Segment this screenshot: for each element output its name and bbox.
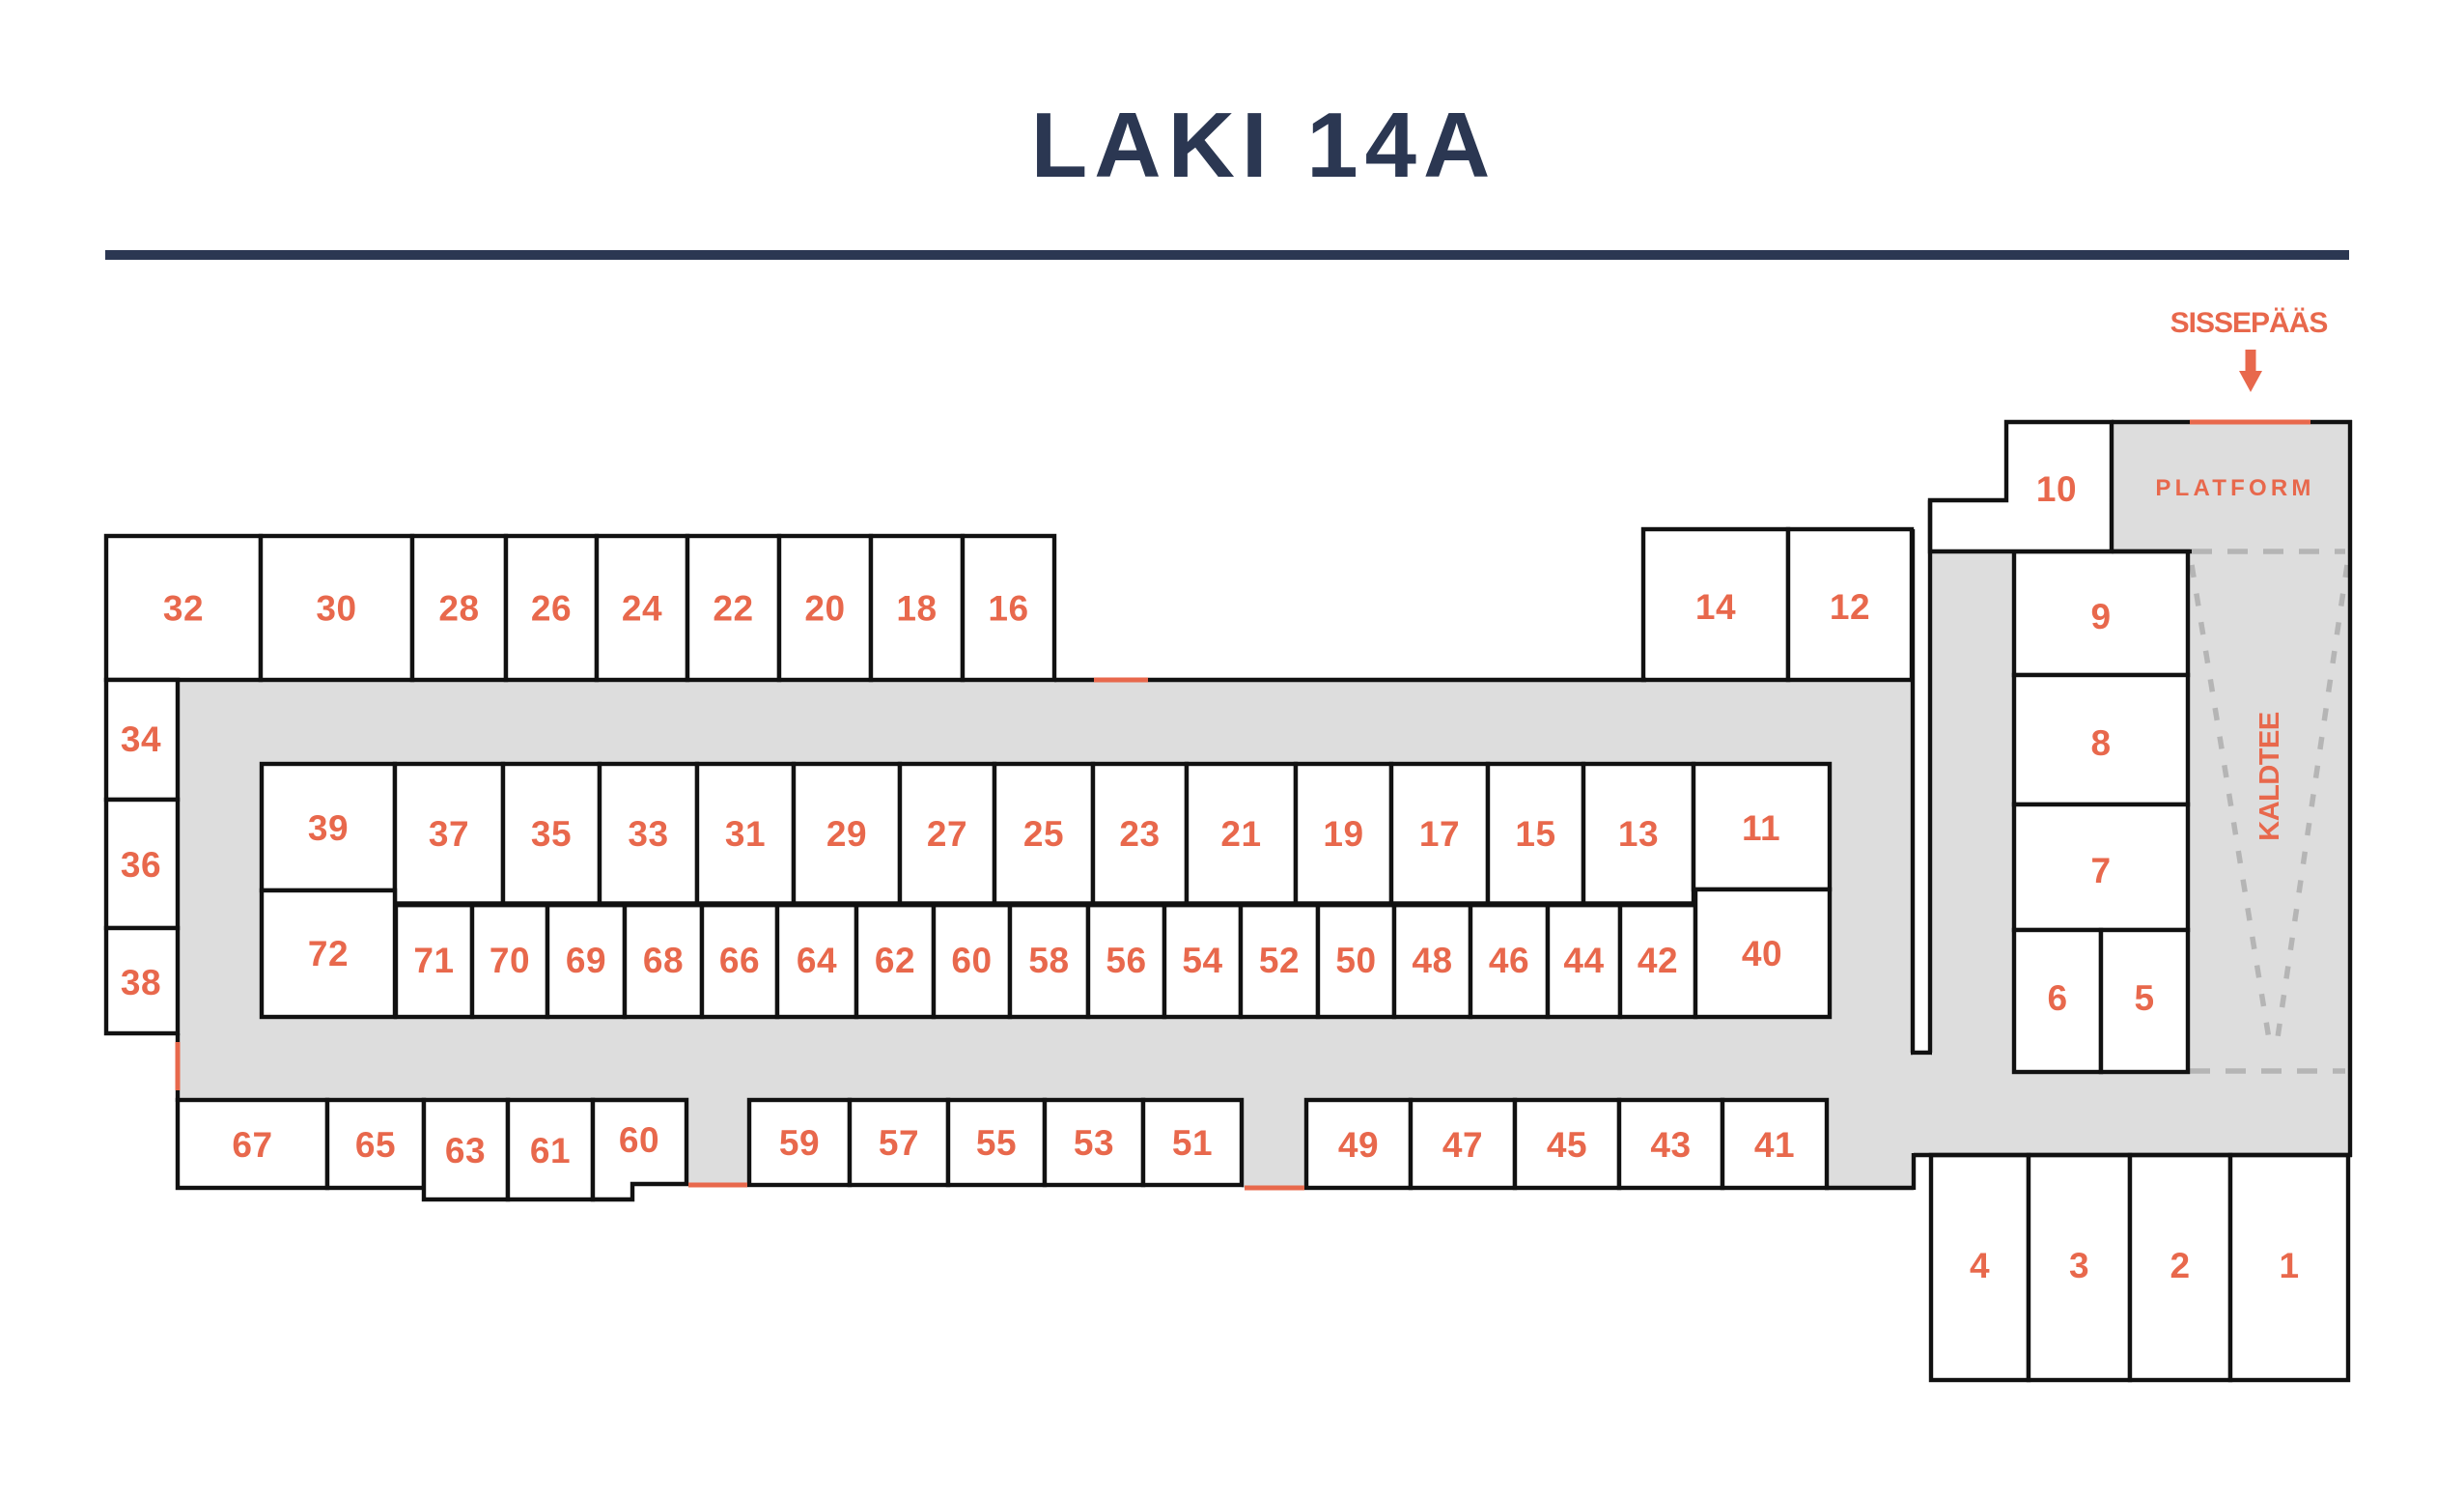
svg-text:44: 44 — [1563, 941, 1604, 980]
svg-text:30: 30 — [316, 589, 356, 629]
svg-text:SISSEPÄÄS: SISSEPÄÄS — [2170, 307, 2328, 339]
svg-text:72: 72 — [308, 934, 349, 973]
svg-text:2: 2 — [2170, 1246, 2190, 1285]
svg-text:35: 35 — [531, 814, 572, 854]
svg-text:37: 37 — [429, 814, 469, 854]
svg-text:60: 60 — [951, 941, 992, 980]
svg-text:16: 16 — [988, 589, 1028, 629]
svg-text:24: 24 — [622, 589, 662, 629]
svg-text:17: 17 — [1419, 814, 1460, 854]
svg-text:57: 57 — [879, 1123, 919, 1163]
svg-text:32: 32 — [163, 589, 204, 629]
svg-text:33: 33 — [628, 814, 668, 854]
svg-text:42: 42 — [1638, 941, 1678, 980]
svg-text:53: 53 — [1074, 1123, 1114, 1163]
svg-text:67: 67 — [232, 1125, 272, 1165]
svg-text:22: 22 — [713, 589, 753, 629]
svg-text:70: 70 — [490, 941, 530, 980]
svg-text:14: 14 — [1695, 587, 1736, 627]
svg-text:41: 41 — [1754, 1125, 1795, 1165]
svg-text:61: 61 — [530, 1131, 571, 1170]
svg-text:19: 19 — [1323, 814, 1363, 854]
svg-text:28: 28 — [438, 589, 479, 629]
svg-text:49: 49 — [1338, 1125, 1379, 1165]
svg-text:36: 36 — [121, 845, 161, 885]
svg-text:64: 64 — [797, 941, 837, 980]
svg-text:4: 4 — [1970, 1246, 1990, 1285]
svg-text:LAKI 14A: LAKI 14A — [1031, 94, 1498, 197]
svg-text:27: 27 — [927, 814, 967, 854]
svg-text:38: 38 — [121, 963, 161, 1002]
svg-text:26: 26 — [531, 589, 572, 629]
svg-text:5: 5 — [2134, 978, 2154, 1018]
svg-text:54: 54 — [1182, 941, 1222, 980]
svg-text:29: 29 — [826, 814, 867, 854]
svg-text:55: 55 — [976, 1123, 1017, 1163]
svg-text:40: 40 — [1742, 934, 1782, 973]
svg-text:46: 46 — [1489, 941, 1529, 980]
svg-text:71: 71 — [413, 941, 454, 980]
svg-text:43: 43 — [1650, 1125, 1691, 1165]
svg-text:34: 34 — [121, 719, 161, 759]
svg-text:6: 6 — [2047, 978, 2067, 1018]
svg-text:45: 45 — [1547, 1125, 1587, 1165]
svg-text:13: 13 — [1618, 814, 1659, 854]
svg-text:21: 21 — [1220, 814, 1261, 854]
svg-text:7: 7 — [2090, 851, 2111, 890]
svg-text:KALDTEE: KALDTEE — [2254, 712, 2285, 841]
svg-text:68: 68 — [643, 941, 684, 980]
svg-text:12: 12 — [1830, 587, 1870, 627]
svg-text:31: 31 — [725, 814, 766, 854]
svg-text:PLATFORM: PLATFORM — [2155, 475, 2314, 501]
svg-text:11: 11 — [1742, 808, 1780, 848]
svg-text:51: 51 — [1172, 1123, 1213, 1163]
svg-text:9: 9 — [2090, 597, 2111, 636]
svg-text:48: 48 — [1412, 941, 1452, 980]
svg-text:58: 58 — [1028, 941, 1069, 980]
svg-text:59: 59 — [779, 1123, 820, 1163]
svg-text:66: 66 — [719, 941, 760, 980]
svg-text:15: 15 — [1515, 814, 1555, 854]
svg-text:50: 50 — [1335, 941, 1376, 980]
svg-text:60: 60 — [619, 1120, 659, 1160]
svg-text:65: 65 — [355, 1125, 396, 1165]
svg-text:62: 62 — [875, 941, 915, 980]
svg-text:52: 52 — [1259, 941, 1300, 980]
svg-text:63: 63 — [445, 1131, 486, 1170]
svg-text:18: 18 — [896, 589, 937, 629]
svg-text:39: 39 — [308, 808, 349, 848]
svg-text:25: 25 — [1023, 814, 1064, 854]
svg-text:20: 20 — [804, 589, 845, 629]
svg-text:1: 1 — [2279, 1246, 2299, 1285]
svg-text:23: 23 — [1119, 814, 1160, 854]
svg-text:47: 47 — [1442, 1125, 1483, 1165]
svg-text:56: 56 — [1106, 941, 1146, 980]
svg-text:8: 8 — [2090, 723, 2111, 763]
svg-text:69: 69 — [566, 941, 606, 980]
svg-text:10: 10 — [2036, 469, 2077, 509]
svg-text:3: 3 — [2069, 1246, 2089, 1285]
